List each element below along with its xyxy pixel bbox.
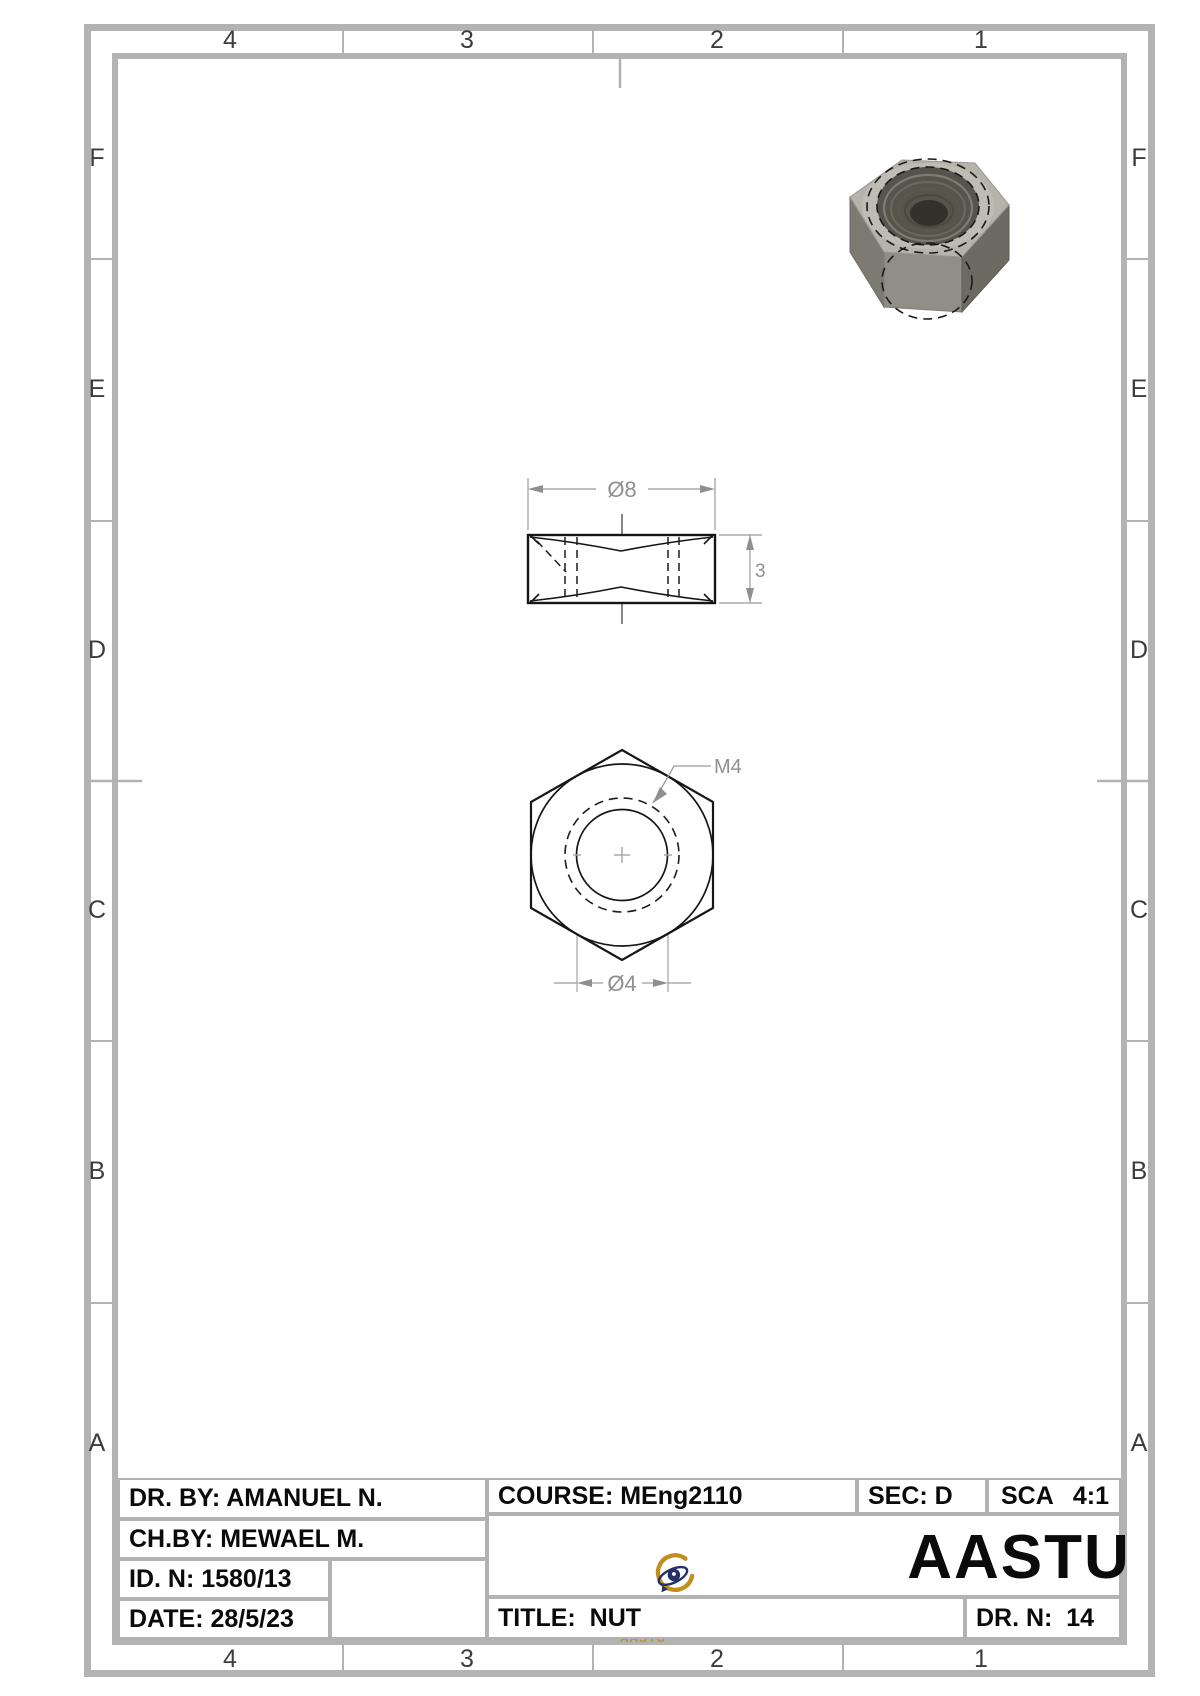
- course-text: COURSE: MEng2110: [498, 1482, 743, 1511]
- zone-row-right-b: B: [1128, 1158, 1150, 1184]
- titleblock-drawn-by: DR. BY: AMANUEL N.: [118, 1478, 487, 1519]
- zone-row-right-e: E: [1128, 376, 1150, 402]
- zone-col-bottom-4: 4: [210, 1646, 250, 1672]
- zone-tick: [1127, 520, 1155, 522]
- drawing-number-text: DR. N: 14: [976, 1604, 1094, 1633]
- zone-tick: [84, 258, 112, 260]
- zone-tick: [1127, 1302, 1155, 1304]
- drawing-sheet: 4 3 2 1 4 3 2 1 F E D C B A F E D C B A: [0, 0, 1200, 1696]
- sheet-inner-border: [112, 53, 1127, 1645]
- zone-row-left-c: C: [86, 897, 108, 923]
- zone-col-top-3: 3: [447, 27, 487, 53]
- titleblock-date: DATE: 28/5/23: [118, 1599, 330, 1639]
- zone-row-left-a: A: [86, 1430, 108, 1456]
- titleblock-id-number: ID. N: 1580/13: [118, 1559, 330, 1599]
- checked-by-text: CH.BY: MEWAEL M.: [129, 1525, 364, 1554]
- id-number-text: ID. N: 1580/13: [129, 1565, 292, 1594]
- zone-tick: [342, 24, 344, 53]
- titleblock-scale: SCA 4:1: [987, 1478, 1121, 1514]
- titleblock-projection-cell: [330, 1559, 487, 1639]
- zone-tick: [842, 24, 844, 53]
- drawn-by-text: DR. BY: AMANUEL N.: [129, 1484, 383, 1513]
- zone-col-bottom-3: 3: [447, 1646, 487, 1672]
- section-text: SEC: D: [868, 1482, 953, 1511]
- scale-value: 4:1: [1073, 1482, 1109, 1511]
- zone-col-top-4: 4: [210, 27, 250, 53]
- zone-row-right-d: D: [1128, 637, 1150, 663]
- zone-tick: [592, 24, 594, 53]
- titleblock-title: TITLE: NUT: [487, 1597, 965, 1639]
- zone-col-top-1: 1: [961, 27, 1001, 53]
- zone-row-left-f: F: [86, 145, 108, 171]
- titleblock-drawing-number: DR. N: 14: [965, 1597, 1121, 1639]
- zone-row-right-f: F: [1128, 145, 1150, 171]
- zone-tick: [842, 1645, 844, 1677]
- zone-row-left-e: E: [86, 376, 108, 402]
- zone-col-bottom-1: 1: [961, 1646, 1001, 1672]
- zone-tick: [84, 520, 112, 522]
- title-text: TITLE: NUT: [498, 1604, 641, 1633]
- zone-col-top-2: 2: [697, 27, 737, 53]
- titleblock-university-band: AASTU AASTU: [487, 1514, 1121, 1597]
- titleblock-checked-by: CH.BY: MEWAEL M.: [118, 1519, 487, 1559]
- date-text: DATE: 28/5/23: [129, 1605, 294, 1634]
- titleblock-course: COURSE: MEng2110: [487, 1478, 857, 1514]
- zone-row-left-d: D: [86, 637, 108, 663]
- zone-col-bottom-2: 2: [697, 1646, 737, 1672]
- zone-tick: [342, 1645, 344, 1677]
- zone-row-right-c: C: [1128, 897, 1150, 923]
- zone-row-right-a: A: [1128, 1430, 1150, 1456]
- zone-tick: [84, 1040, 112, 1042]
- scale-label: SCA: [1001, 1482, 1054, 1511]
- titleblock-section: SEC: D: [857, 1478, 987, 1514]
- university-name: AASTU: [739, 1522, 1200, 1593]
- zone-tick: [1127, 1040, 1155, 1042]
- zone-tick: [592, 1645, 594, 1677]
- zone-tick: [84, 1302, 112, 1304]
- zone-row-left-b: B: [86, 1158, 108, 1184]
- zone-tick: [1127, 258, 1155, 260]
- aastu-logo-emblem: [649, 1551, 695, 1597]
